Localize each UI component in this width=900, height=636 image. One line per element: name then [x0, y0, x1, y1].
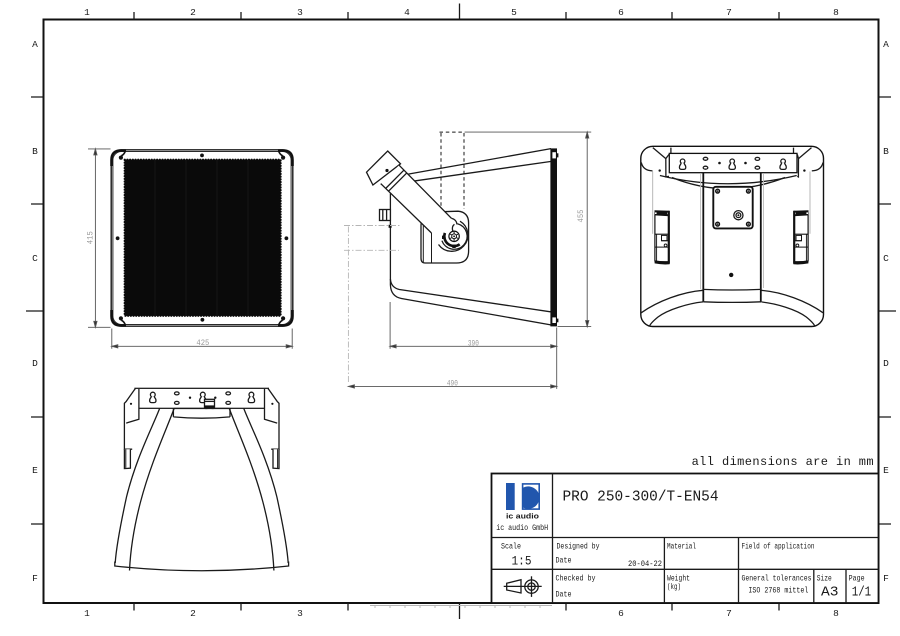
svg-text:E: E — [32, 465, 38, 476]
svg-text:8: 8 — [833, 7, 839, 18]
svg-text:390: 390 — [468, 338, 479, 348]
svg-text:Field of application: Field of application — [742, 542, 815, 552]
svg-text:2: 2 — [190, 608, 196, 619]
svg-text:ic audio GmbH: ic audio GmbH — [496, 524, 548, 533]
svg-text:D: D — [883, 358, 889, 369]
svg-text:F: F — [883, 573, 889, 584]
svg-text:3: 3 — [297, 608, 303, 619]
svg-text:A3: A3 — [821, 586, 839, 601]
svg-text:C: C — [883, 253, 889, 264]
svg-text:C: C — [32, 253, 38, 264]
svg-text:1: 1 — [84, 608, 90, 619]
svg-text:Checked by: Checked by — [556, 574, 596, 584]
svg-text:B: B — [883, 146, 889, 157]
svg-text:PRO 250-300/T-EN54: PRO 250-300/T-EN54 — [563, 490, 719, 506]
svg-text:D: D — [32, 358, 38, 369]
svg-text:3: 3 — [297, 7, 303, 18]
svg-text:Designed by: Designed by — [557, 542, 600, 552]
svg-text:Material: Material — [667, 542, 696, 552]
svg-text:E: E — [883, 465, 889, 476]
svg-text:2: 2 — [190, 7, 196, 18]
svg-text:490: 490 — [447, 379, 458, 389]
svg-text:ic audio: ic audio — [506, 511, 539, 520]
svg-text:(kg): (kg) — [667, 582, 681, 592]
svg-text:A: A — [32, 39, 38, 50]
svg-text:6: 6 — [618, 608, 624, 619]
svg-text:415: 415 — [86, 231, 96, 244]
svg-text:General tolerances: General tolerances — [742, 574, 812, 584]
svg-text:6: 6 — [618, 7, 624, 18]
svg-text:425: 425 — [196, 338, 209, 348]
svg-text:1: 1 — [84, 7, 90, 18]
svg-text:ISO 2768 mittel: ISO 2768 mittel — [748, 586, 808, 596]
svg-text:455: 455 — [576, 210, 586, 223]
svg-text:4: 4 — [404, 7, 410, 18]
svg-text:1:5: 1:5 — [512, 554, 532, 569]
svg-text:F: F — [32, 573, 38, 584]
svg-text:Page: Page — [849, 574, 865, 584]
svg-text:A: A — [883, 39, 889, 50]
svg-text:7: 7 — [726, 7, 732, 18]
svg-text:B: B — [32, 146, 38, 157]
svg-text:Date: Date — [556, 556, 572, 566]
svg-text:8: 8 — [833, 608, 839, 619]
svg-text:Size: Size — [817, 574, 832, 584]
svg-text:20-04-22: 20-04-22 — [628, 559, 662, 569]
svg-text:7: 7 — [726, 608, 732, 619]
svg-text:5: 5 — [511, 7, 517, 18]
svg-text:all dimensions are in mm: all dimensions are in mm — [692, 455, 874, 469]
svg-text:1/1: 1/1 — [852, 586, 872, 601]
svg-text:Scale: Scale — [501, 542, 521, 552]
svg-text:Date: Date — [556, 590, 572, 600]
